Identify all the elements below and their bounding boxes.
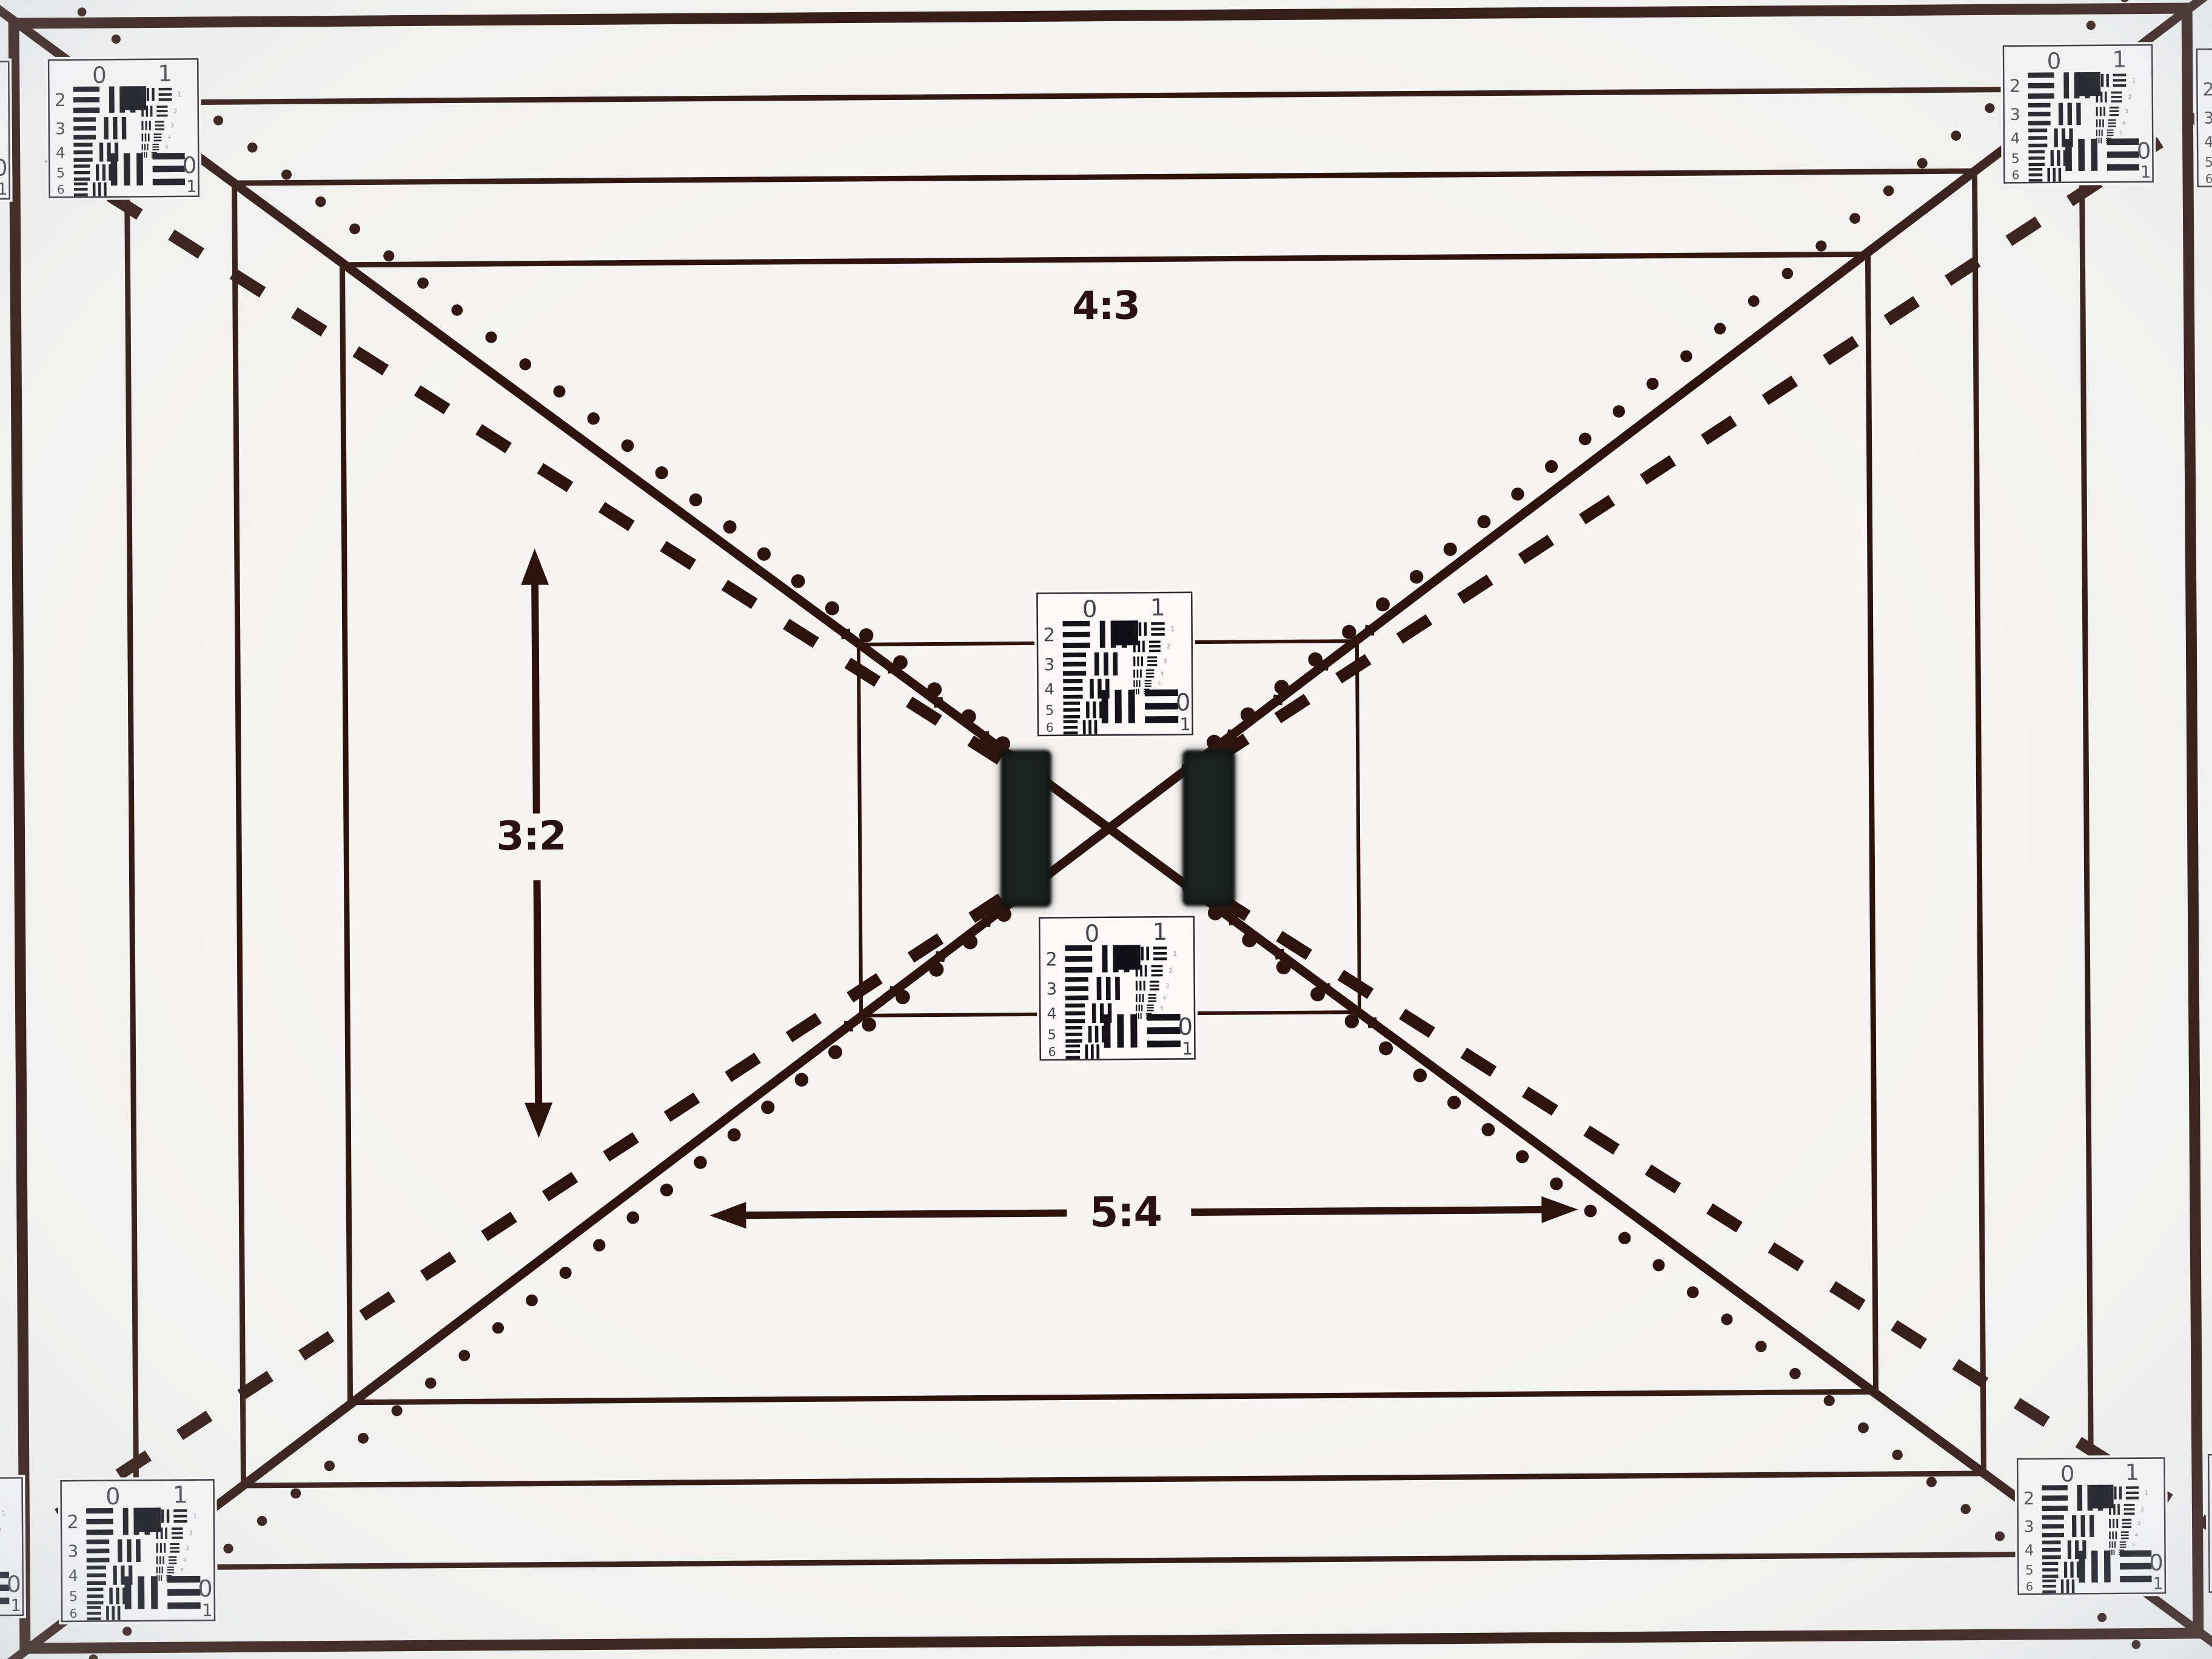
lens-test-chart-photo: 012345612345601 4:3 3:2 5:4 <box>0 0 2212 1659</box>
usaf-target-bottom-left <box>58 1476 218 1624</box>
usaf-target-bottom-right <box>2014 1455 2168 1597</box>
aspect-label-3-2: 3:2 <box>496 813 566 860</box>
aspect-label-5-4: 5:4 <box>1090 1188 1162 1237</box>
velcro-patch-left <box>1000 750 1051 907</box>
arrowhead-down <box>525 1102 552 1138</box>
usaf-target-left-edge-top <box>0 58 13 203</box>
usaf-target-right-edge-bottom <box>2205 1450 2212 1595</box>
usaf-target-top-left <box>45 56 202 200</box>
usaf-target-left-edge-bottom <box>0 1475 26 1619</box>
velcro-patch-right <box>1182 750 1235 906</box>
usaf-target-top-right <box>2000 42 2156 186</box>
chart-line-art <box>0 0 2212 1659</box>
chart-print: 4:3 3:2 5:4 <box>0 0 2212 1659</box>
usaf-target-center-top <box>1034 589 1196 739</box>
arrowhead-up <box>521 548 549 585</box>
aspect-label-4-3: 4:3 <box>1072 284 1140 329</box>
test-chart-artwork: 012345612345601 4:3 3:2 5:4 <box>0 0 2212 1659</box>
arrowhead-left <box>709 1202 746 1228</box>
solid-diagonals <box>0 0 2212 1659</box>
usaf-target-right-edge-top <box>2194 45 2212 190</box>
usaf-target-center-bottom <box>1036 914 1198 1063</box>
arrowhead-right <box>1541 1196 1578 1223</box>
